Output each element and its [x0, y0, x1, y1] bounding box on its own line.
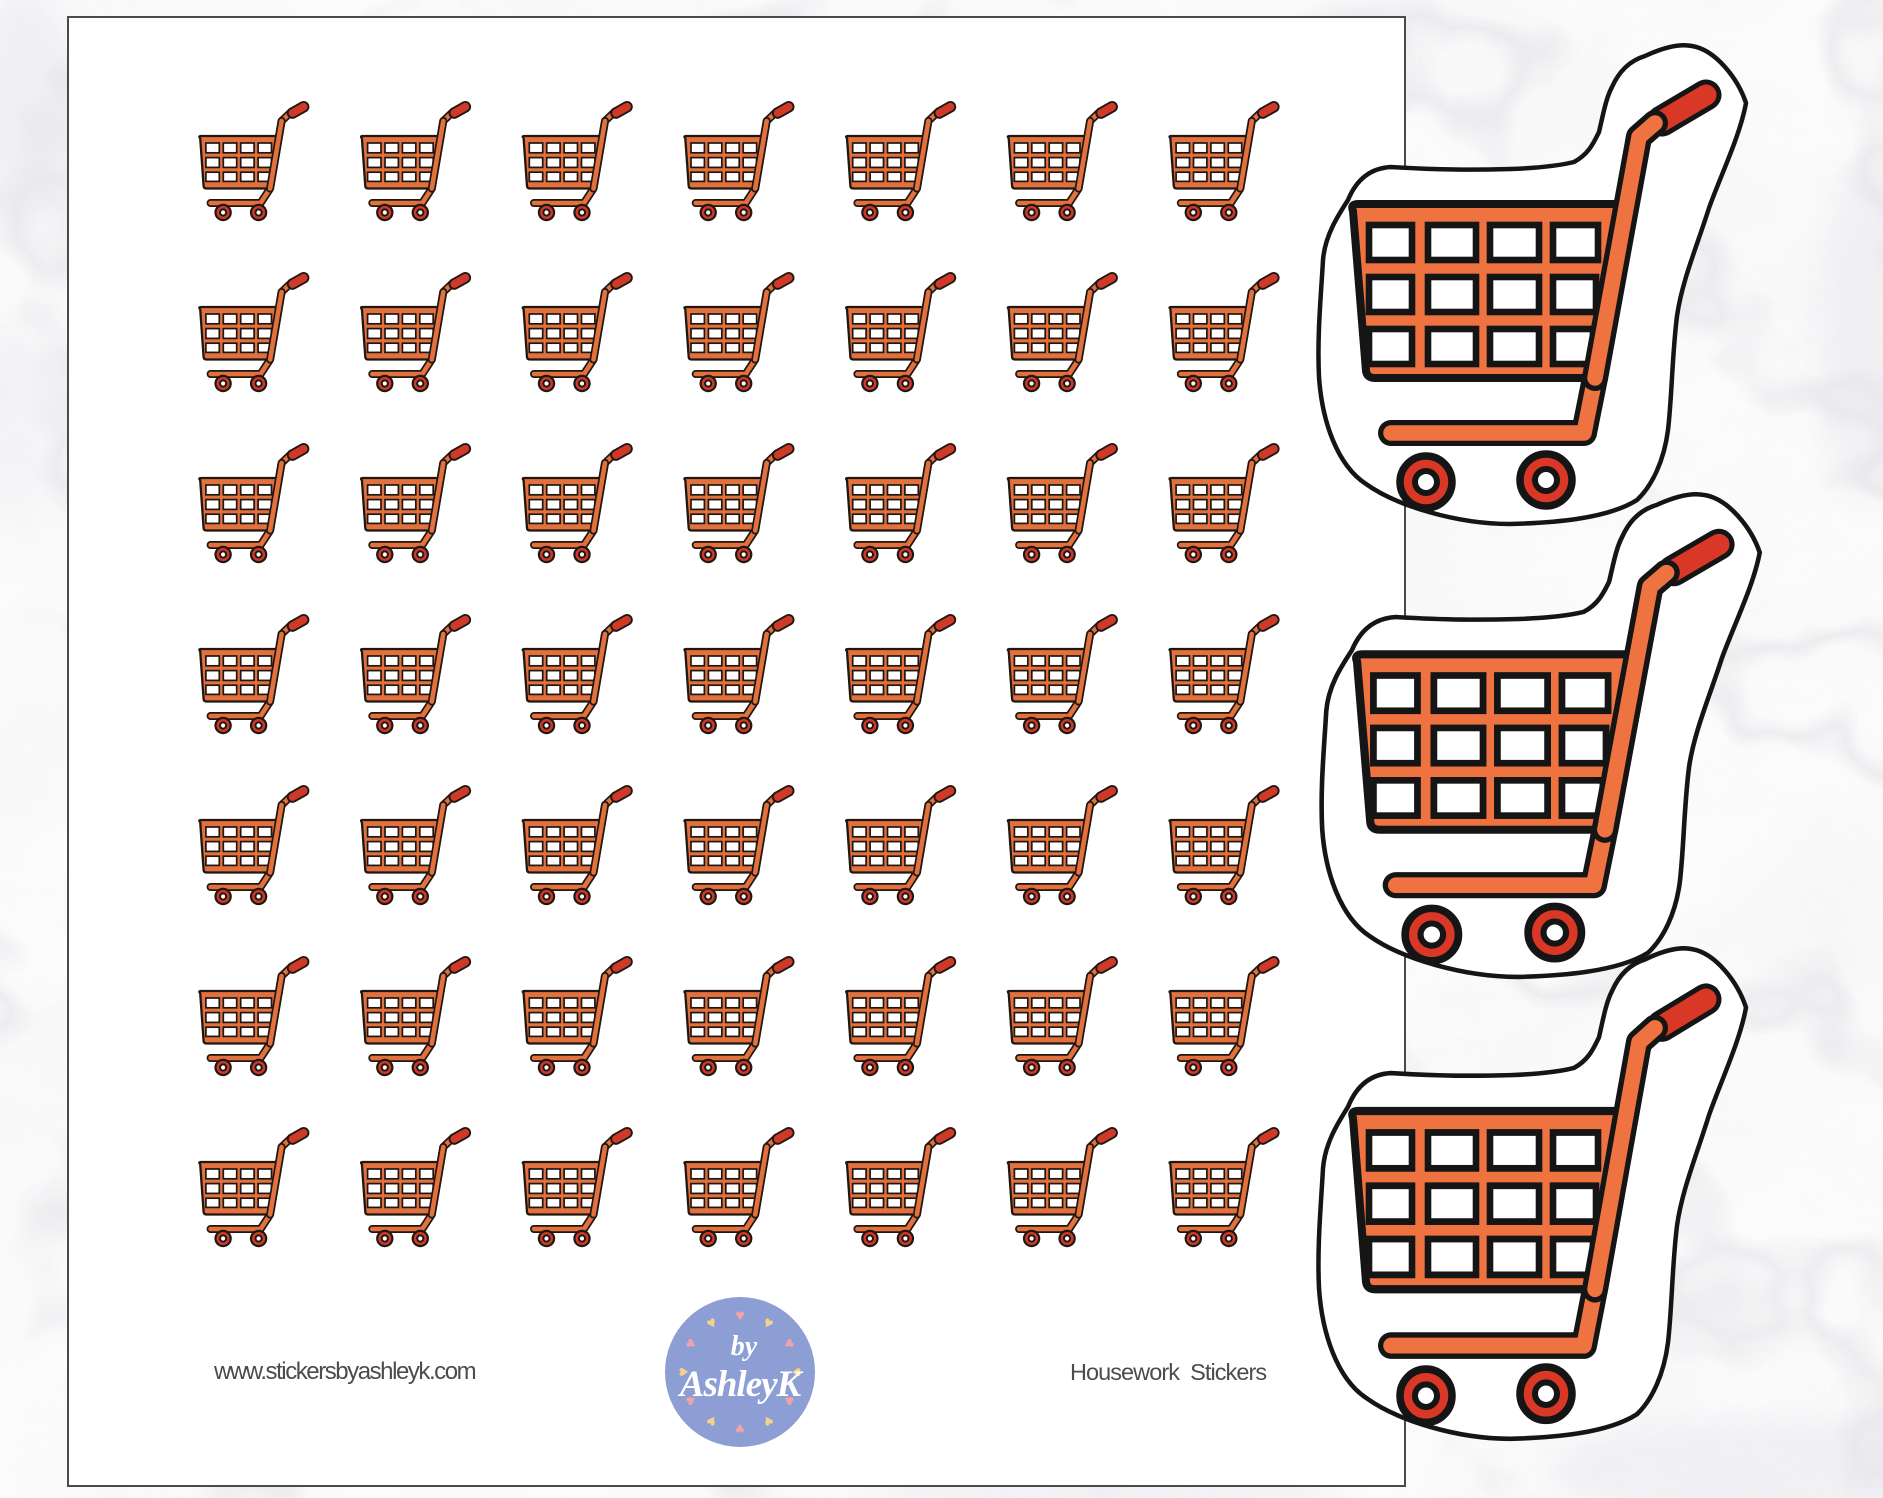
svg-text:by: by: [731, 1331, 758, 1362]
svg-text:AshleyK: AshleyK: [678, 1364, 804, 1405]
svg-text:♥: ♥: [735, 1308, 745, 1325]
svg-text:♥: ♥: [735, 1420, 745, 1437]
